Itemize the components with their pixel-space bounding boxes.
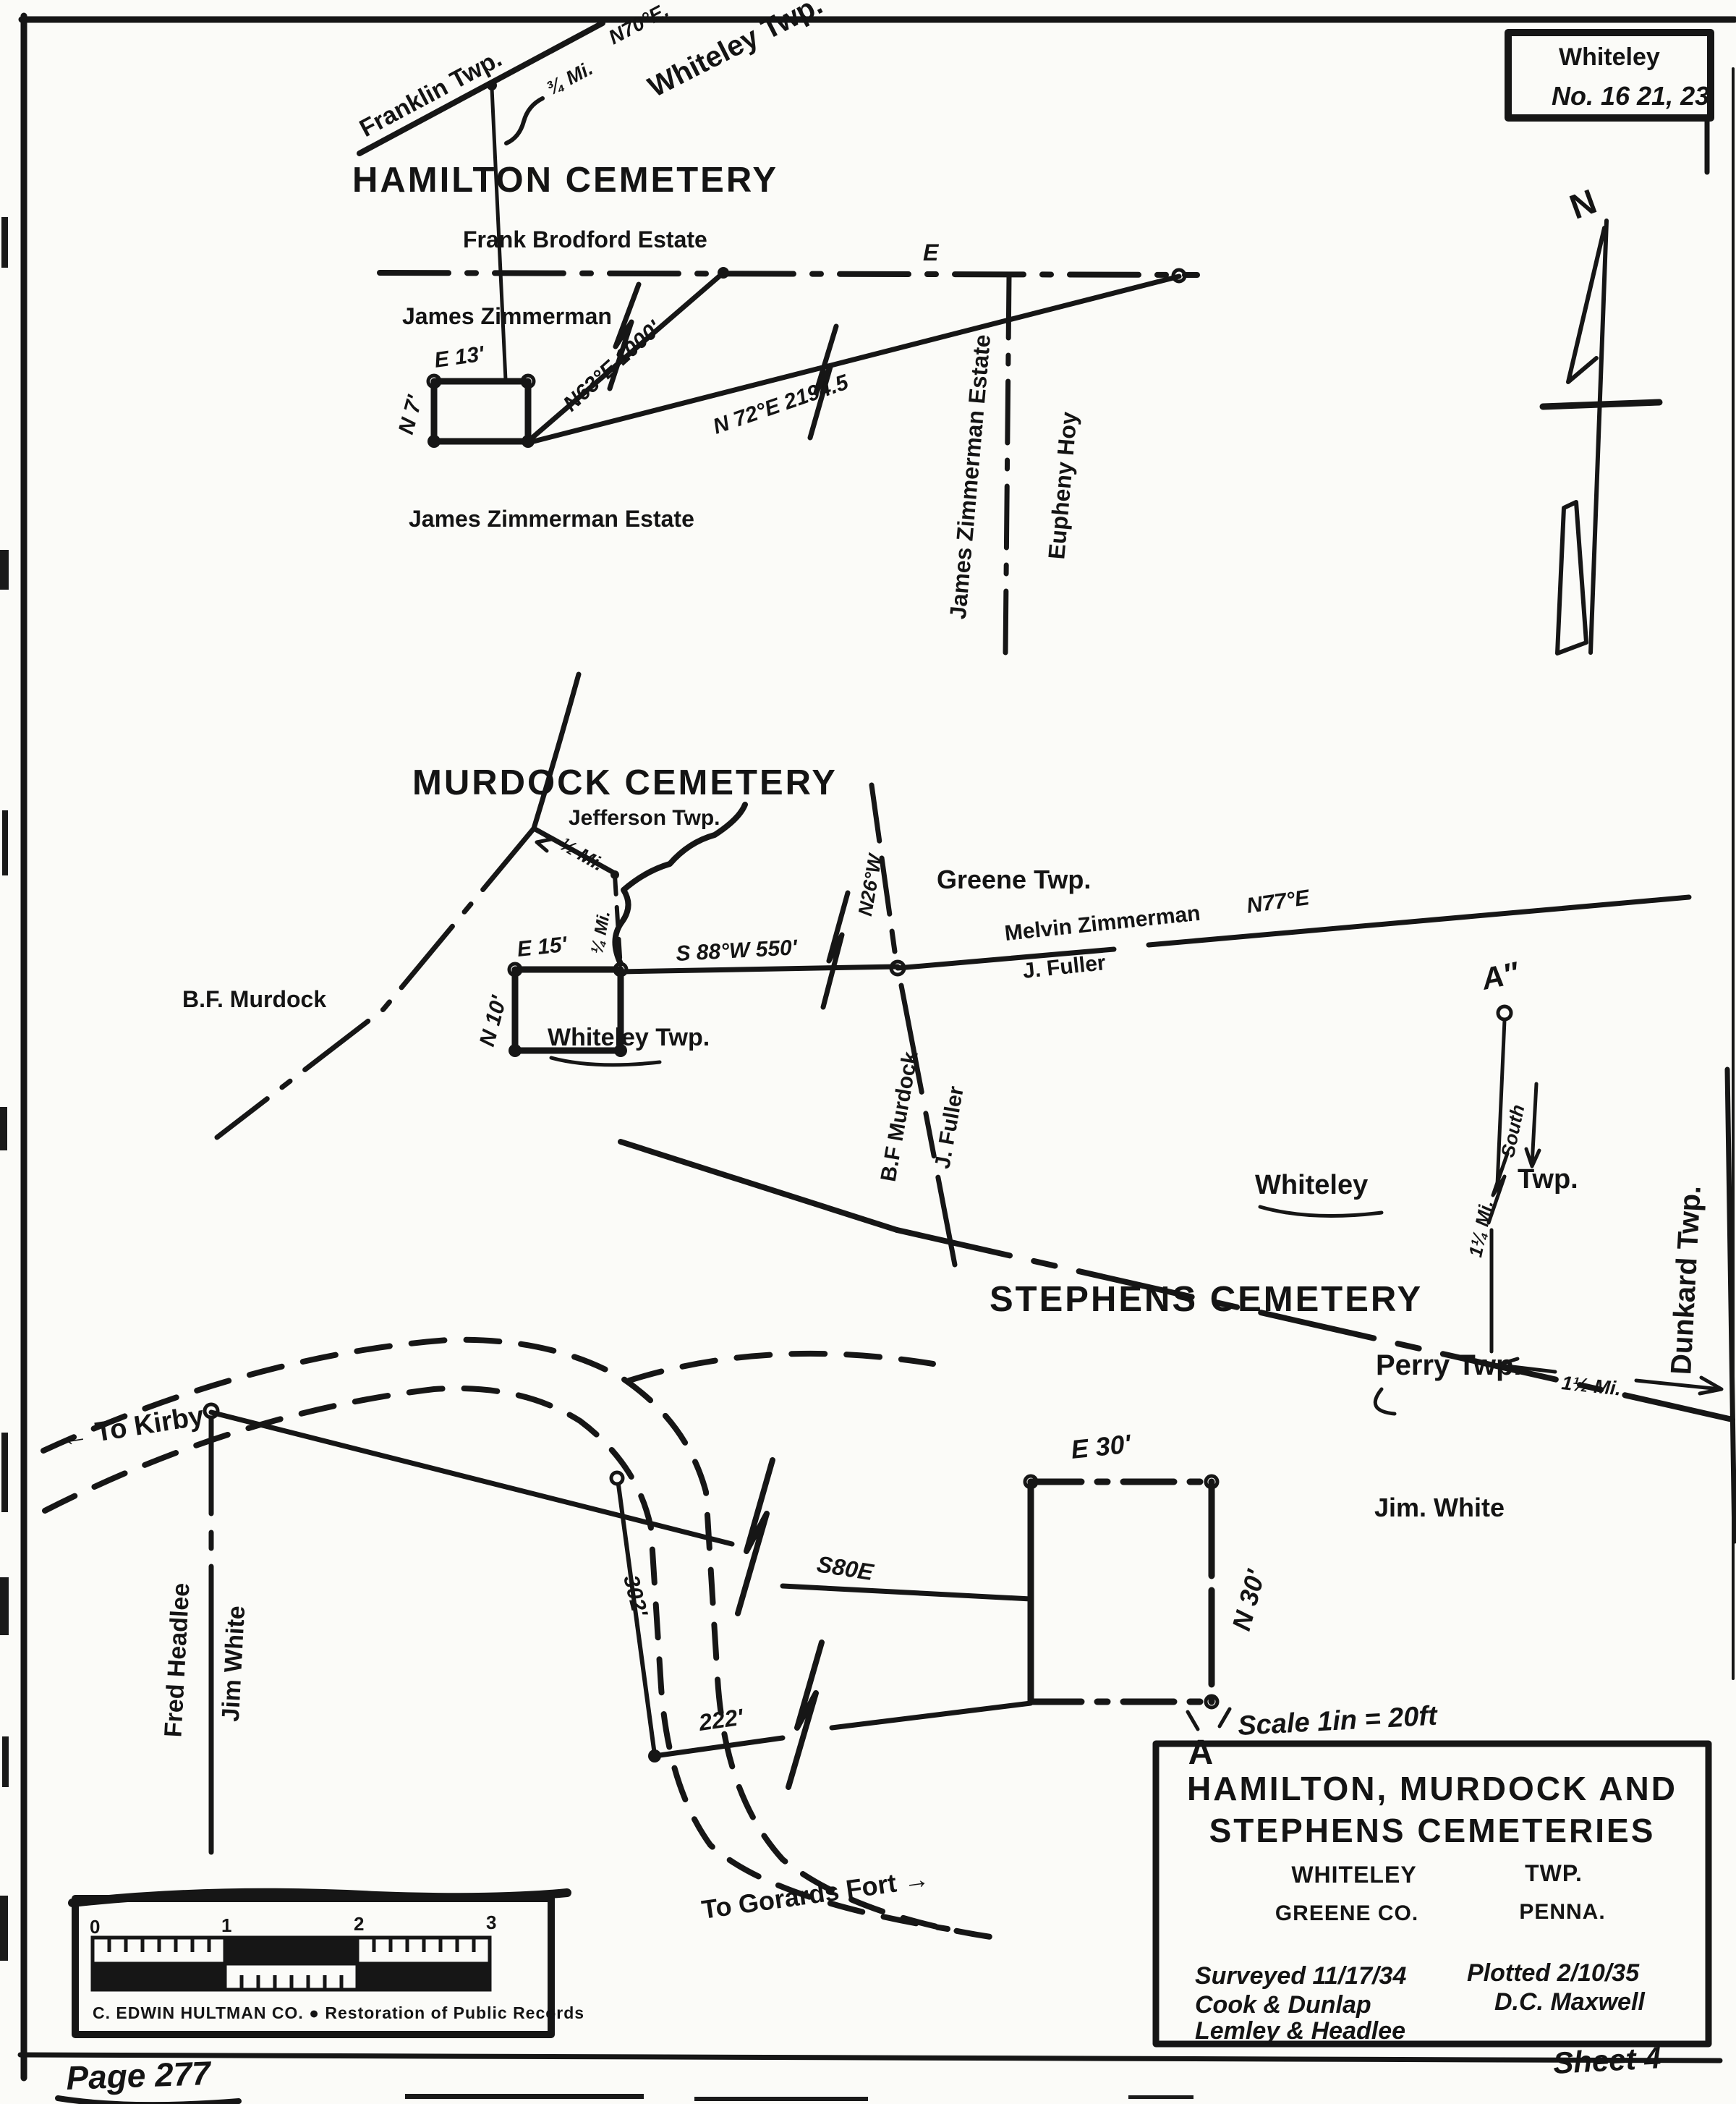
road-southwest (217, 828, 534, 1137)
jim-white-owner-label: Jim. White (1374, 1493, 1505, 1522)
reference-number: No. 16 21, 23 (1552, 81, 1709, 111)
whiteley-twp-murdock: Whiteley Twp. (548, 1024, 710, 1065)
south-arrow-shaft (1532, 1084, 1536, 1165)
to-gorards-fort-label: To Gorards Fort → (699, 1863, 931, 1925)
plot-height-label: N 10' (475, 993, 511, 1048)
road-dashed-east-branch (629, 1354, 933, 1380)
murdock-title: MURDOCK CEMETERY (412, 763, 838, 802)
s88w-distance-label: S 88°W 550' (676, 936, 799, 966)
underline-swash (1260, 1207, 1382, 1216)
jefferson-twp-label: Jefferson Twp. (569, 806, 720, 830)
zimmerman-property-line (1005, 276, 1009, 655)
break-mark (823, 893, 848, 1007)
underline-swash (551, 1058, 660, 1065)
needle-head (1568, 228, 1604, 382)
whiteley-twp-stephens: Whiteley Twp. (1255, 1164, 1578, 1216)
title-block: HAMILTON, MURDOCK AND STEPHENS CEMETERIE… (1156, 1744, 1709, 2045)
title-line-2: STEPHENS CEMETERIES (1209, 1812, 1656, 1849)
greene-twp-label: Greene Twp. (937, 865, 1091, 894)
north-arrow-icon: N (1543, 182, 1659, 653)
line-endpoint (718, 267, 729, 279)
scale-note: Scale 1in = 20ft (1237, 1701, 1439, 1742)
scan-artifacts (0, 217, 1193, 2101)
witness-tick (1220, 1709, 1230, 1726)
line-222-west (655, 1738, 783, 1756)
break-mark (738, 1460, 773, 1613)
hamilton-plot: E 13' N 7' (394, 342, 535, 448)
dunkard-twp-label: Dunkard Twp. (1665, 1185, 1707, 1375)
title-line-1: HAMILTON, MURDOCK AND (1187, 1770, 1677, 1807)
underline-swash (1375, 1389, 1395, 1414)
stephens-plot: E 30' N 30' A (1025, 1428, 1271, 1772)
n63e-distance-label: N63°E 1000' (559, 316, 667, 416)
n77e-bearing-label: N77°E (1245, 886, 1311, 918)
scale-number: 3 (486, 1912, 496, 1933)
hamilton-title: HAMILTON CEMETERY (352, 161, 778, 200)
hamilton-plot-outline (434, 381, 528, 441)
a-reference-label: A″ (1478, 955, 1523, 996)
reference-county: Whiteley (1559, 43, 1660, 71)
murdock-section: ½ Mi. MURDOCK CEMETERY Jefferson Twp. Gr… (182, 674, 1689, 1265)
page-number-underline (58, 2098, 239, 2104)
james-zimmerman-label: James Zimmerman (402, 303, 612, 329)
melvin-zimmerman-label: Melvin Zimmerman (1003, 902, 1201, 946)
half-mile-label: ½ Mi. (556, 833, 608, 875)
fred-headlee-label: Fred Headlee (159, 1582, 195, 1738)
survey-point (611, 1472, 623, 1484)
surveyed-date: Surveyed 11/17/34 (1195, 1962, 1406, 1990)
whiteley-twp-label-top: Whiteley Twp. (643, 0, 827, 103)
scale-number: 1 (221, 1914, 231, 1936)
sheet-number: Sheet 4 (1552, 2040, 1662, 2080)
plotter-name: D.C. Maxwell (1494, 1988, 1646, 2016)
reference-box: Whiteley No. 16 21, 23 (1508, 33, 1711, 172)
s80e-line-east (783, 1586, 1031, 1599)
james-zimmerman-estate-vertical-label: James Zimmerman Estate (945, 334, 995, 620)
tie-squiggle (506, 98, 542, 143)
title-twp-left: WHITELEY (1291, 1862, 1416, 1888)
a-corner-label: A (1188, 1734, 1214, 1772)
stamp-caption: C. EDWIN HULTMAN CO. ● Restoration of Pu… (93, 2003, 584, 2022)
restoration-stamp: 0 1 2 3 C. (72, 1893, 584, 2035)
break-mark (788, 1642, 822, 1787)
eupheny-hoy-label: Eupheny Hoy (1043, 410, 1082, 560)
corner-marker (614, 1044, 627, 1057)
corner-marker (509, 1044, 522, 1057)
three-quarter-mile-label: ¾ Mi. (543, 57, 597, 99)
needle-crossbar (1543, 402, 1659, 407)
title-county: GREENE CO. (1275, 1901, 1418, 1925)
plat-drawing: Whiteley No. 16 21, 23 N Franklin Twp. N… (0, 0, 1736, 2104)
melvin-road-b (1149, 897, 1689, 945)
road-arrowhead (537, 839, 551, 851)
plotted-date: Plotted 2/10/35 (1467, 1959, 1640, 1987)
title-state: PENNA. (1519, 1900, 1605, 1924)
whiteley-twp-label-murdock: Whiteley Twp. (548, 1024, 710, 1051)
one-half-mile-label: 1½ Mi. (1560, 1372, 1622, 1399)
page-number: Page 277 (66, 2054, 213, 2097)
title-twp-right: TWP. (1525, 1860, 1583, 1886)
twp-label: Twp. (1518, 1164, 1578, 1195)
needle-feather (1557, 502, 1586, 653)
plot-width-label: E 13' (433, 342, 486, 373)
corner-marker (427, 435, 441, 448)
n26w-bearing-label: N26°W (854, 851, 887, 917)
quarter-mile-label: ¼ Mi. (587, 909, 614, 956)
tie-point (610, 870, 619, 879)
perry-twp: Perry Twp. (1375, 1349, 1521, 1414)
whiteley-label: Whiteley (1255, 1170, 1368, 1200)
james-zimmerman-estate-label: James Zimmerman Estate (409, 506, 694, 532)
scale-number: 0 (90, 1916, 100, 1938)
jim-white-road-label: Jim White (217, 1605, 250, 1722)
dist-302-label: 302' (618, 1573, 652, 1619)
stephens-title: STEPHENS CEMETERY (990, 1280, 1423, 1319)
bf-murdock-vertical-label: B.F Murdock (877, 1050, 923, 1184)
dist-222-label: 222' (697, 1704, 746, 1736)
surveyors-line-2: Lemley & Headlee (1195, 2017, 1405, 2045)
dimension-arrowhead-right (1700, 1378, 1722, 1394)
page-annotations: Page 277 Sheet 4 (58, 2040, 1662, 2104)
border-bottom (20, 2055, 1720, 2061)
line-222-east (832, 1703, 1031, 1728)
s88w-measure-line (621, 967, 898, 972)
surveyors-line-1: Cook & Dunlap (1195, 1991, 1371, 2019)
bf-murdock-label: B.F. Murdock (182, 986, 326, 1012)
s80e-line-west (211, 1412, 732, 1544)
plot-height-label: N 30' (1226, 1566, 1271, 1634)
plot-width-label: E 15' (516, 933, 569, 962)
s80e-bearing-label: S80E (815, 1551, 877, 1585)
north-letter: N (1565, 182, 1602, 227)
witness-tick (1188, 1712, 1198, 1729)
east-label: E (923, 239, 940, 266)
plot-height-label: N 7' (394, 392, 427, 436)
stephens-road-west (621, 1142, 897, 1230)
scale-number: 2 (354, 1913, 364, 1935)
scale-bar (93, 1938, 490, 1990)
n70e-bearing: N70°E. (605, 0, 672, 48)
plot-width-label: E 30' (1070, 1428, 1133, 1464)
reference-point (1498, 1006, 1511, 1019)
to-kirby-label: ← To Kirby (59, 1401, 206, 1454)
franklin-twp-label: Franklin Twp. (355, 45, 506, 143)
hamilton-section: Franklin Twp. N70°E. ¾ Mi. Whiteley Twp.… (352, 0, 1197, 655)
stephens-section: A″ 1¼ Mi. South Whiteley Twp. STEPHENS C… (621, 955, 1735, 1541)
j-fuller-vertical-label: J. Fuller (930, 1085, 969, 1171)
survey-sheet: Whiteley No. 16 21, 23 N Franklin Twp. N… (0, 0, 1736, 2104)
